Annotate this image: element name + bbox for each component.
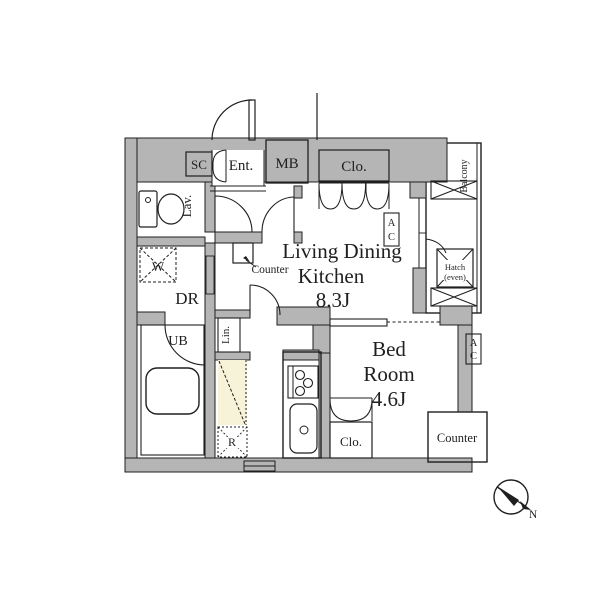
wall-stub-door-top [294,186,302,198]
label-dressing-room: DR [175,289,199,308]
label-hatch-line1: Hatch [445,262,466,272]
floor-plan-page: SC Ent. MB Clo. Lav. W DR UB Lin. R Coun… [0,0,610,610]
label-ldk-line2: Kitchen [298,264,365,288]
label-linen: Lin. [220,326,232,344]
label-lavatory: Lav. [179,195,194,218]
wall-bottom [125,458,472,472]
label-ac-a-bedroom: A [470,338,478,349]
wall-hall-bottom [215,232,262,243]
label-bedroom-line1: Bed [372,337,406,361]
label-meter-box: MB [275,156,298,172]
label-sc: SC [191,157,207,172]
background [0,0,610,610]
wall-kitchen-left-block [313,325,330,353]
wall-lav-right [205,182,215,232]
label-balcony: Balcony [459,159,470,192]
label-hall-counter: Counter [251,264,288,276]
label-unit-bath: UB [168,334,187,349]
wall-bedroom-ne [440,306,472,325]
label-refrigerator: R [228,435,236,449]
label-bedroom-area: 4.6J [372,387,406,411]
label-bedroom-line2: Room [363,362,414,386]
wall-lav-bottom [137,237,205,246]
label-washing-machine: W [152,259,165,274]
wall-dr-ub-right [205,243,215,458]
wall-step-topright [410,182,426,198]
label-ac-c-bedroom: C [470,351,477,362]
label-ac-c-ldk: C [388,232,395,243]
wall-linen-top [215,310,250,318]
label-hatch-line2: (even) [444,272,466,282]
floor-plan-svg: SC Ent. MB Clo. Lav. W DR UB Lin. R Coun… [0,0,610,610]
label-entrance: Ent. [229,158,254,174]
label-closet-entry: Clo. [341,159,366,175]
wall-ub-top [137,312,165,325]
label-ldk-area: 8.3J [316,288,350,312]
label-closet-bedroom: Clo. [340,434,362,449]
label-compass-north: N [529,509,538,521]
label-bedroom-counter: Counter [437,431,478,445]
label-ldk-line1: Living Dining [282,239,402,263]
storage-strip [218,360,247,425]
wall-linen-bottom [215,352,250,360]
wall-below-window [413,268,426,313]
wall-left [125,138,137,472]
label-ac-a-ldk: A [388,218,396,229]
